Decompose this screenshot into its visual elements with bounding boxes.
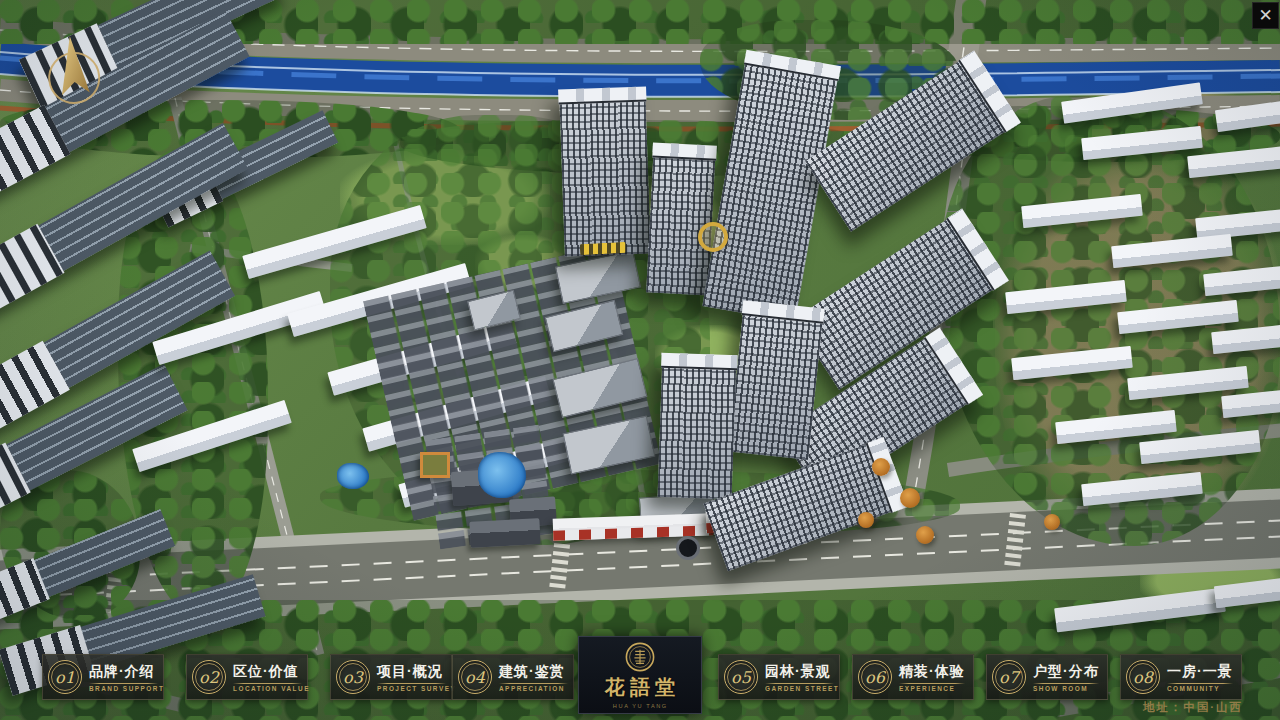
divider-line: [233, 683, 302, 684]
seal-emblem-icon: [624, 641, 656, 673]
nav-item-text: 精装·体验 EXPERIENCE: [899, 663, 965, 692]
compass-icon: [42, 32, 106, 112]
divider-line: [377, 683, 446, 684]
nav-item-text: 区位·价值 LOCATION VALUE: [233, 663, 302, 692]
divider-line: [499, 683, 568, 684]
water-feature: [337, 463, 369, 489]
close-icon: ✕: [1258, 6, 1272, 25]
nav-item-interior-experience[interactable]: o6 精装·体验 EXPERIENCE: [852, 654, 974, 700]
nav-item-text: 户型·分布 SHOW ROOM: [1033, 663, 1099, 692]
pool: [478, 452, 526, 498]
nav-item-brand-intro[interactable]: o1 品牌·介绍 BRAND SUPPORT: [42, 654, 164, 700]
nav-item-location-value[interactable]: o2 区位·价值 LOCATION VALUE: [186, 654, 308, 700]
nav-item-room-views[interactable]: o8 一房·一景 COMMUNITY: [1120, 654, 1242, 700]
badge-number: o4: [465, 668, 485, 687]
project-logo[interactable]: 花語堂 HUA YU TANG: [578, 636, 702, 714]
divider-line: [765, 683, 834, 684]
nav-item-title: 区位·价值: [233, 663, 302, 681]
badge-number: o7: [999, 668, 1019, 687]
nav-item-title: 项目·概况: [377, 663, 446, 681]
nav-item-text: 一房·一景 COMMUNITY: [1167, 663, 1233, 692]
nav-item-subtitle: PROJECT SURVEY: [377, 685, 440, 691]
nav-item-text: 建筑·鉴赏 APPRECIATION: [499, 663, 568, 692]
divider-line: [899, 683, 965, 684]
orange-tree: [872, 458, 890, 476]
number-badge: o3: [336, 660, 370, 694]
nav-item-title: 园林·景观: [765, 663, 834, 681]
nav-item-title: 建筑·鉴赏: [499, 663, 568, 681]
orange-tree: [916, 526, 934, 544]
nav-item-floorplans[interactable]: o7 户型·分布 SHOW ROOM: [986, 654, 1108, 700]
number-badge: o1: [48, 660, 82, 694]
number-badge: o6: [858, 660, 892, 694]
tower-building: [559, 89, 651, 257]
divider-line: [1167, 683, 1233, 684]
project-name: 花語堂: [605, 674, 680, 701]
nav-item-subtitle: GARDEN STREET: [765, 685, 828, 691]
entrance-plaza: [676, 536, 700, 560]
badge-number: o8: [1133, 668, 1153, 687]
badge-number: o6: [865, 668, 885, 687]
number-badge: o8: [1126, 660, 1160, 694]
orange-tree: [1044, 514, 1060, 530]
app-window: ✕ o1 品牌·介绍 BRAND SUPPORT o2 区位·价值 LOCATI…: [0, 0, 1280, 720]
divider-line: [89, 683, 158, 684]
badge-number: o3: [343, 668, 363, 687]
divider-line: [1033, 683, 1099, 684]
nav-item-text: 品牌·介绍 BRAND SUPPORT: [89, 663, 158, 692]
tower-building: [658, 355, 737, 499]
number-badge: o7: [992, 660, 1026, 694]
number-badge: o5: [724, 660, 758, 694]
address-label: 地址：中国·山西: [1143, 700, 1243, 715]
gold-pavilion-ring: [698, 222, 728, 252]
nav-item-subtitle: LOCATION VALUE: [233, 685, 296, 691]
nav-item-subtitle: SHOW ROOM: [1033, 685, 1093, 691]
nav-item-subtitle: COMMUNITY: [1167, 685, 1227, 691]
nav-item-subtitle: BRAND SUPPORT: [89, 685, 152, 691]
badge-number: o2: [199, 668, 219, 687]
nav-item-subtitle: EXPERIENCE: [899, 685, 959, 691]
orange-tree: [900, 488, 920, 508]
nav-item-title: 一房·一景: [1167, 663, 1233, 681]
nav-item-project-overview[interactable]: o3 项目·概况 PROJECT SURVEY: [330, 654, 452, 700]
nav-item-title: 精装·体验: [899, 663, 965, 681]
nav-item-text: 项目·概况 PROJECT SURVEY: [377, 663, 446, 692]
nav-item-subtitle: APPRECIATION: [499, 685, 562, 691]
orange-building: [420, 452, 450, 478]
courtyard-roof: [469, 518, 540, 548]
nav-item-title: 户型·分布: [1033, 663, 1099, 681]
nav-item-architecture[interactable]: o4 建筑·鉴赏 APPRECIATION: [452, 654, 574, 700]
badge-number: o1: [55, 668, 75, 687]
orange-tree: [858, 512, 874, 528]
number-badge: o4: [458, 660, 492, 694]
nav-item-garden-landscape[interactable]: o5 园林·景观 GARDEN STREET: [718, 654, 840, 700]
close-button[interactable]: ✕: [1252, 2, 1279, 29]
tower-building: [646, 144, 716, 295]
project-tagline: HUA YU TANG: [613, 703, 668, 709]
nav-item-text: 园林·景观 GARDEN STREET: [765, 663, 834, 692]
nav-item-title: 品牌·介绍: [89, 663, 158, 681]
number-badge: o2: [192, 660, 226, 694]
badge-number: o5: [731, 668, 751, 687]
tower-building: [728, 302, 823, 460]
